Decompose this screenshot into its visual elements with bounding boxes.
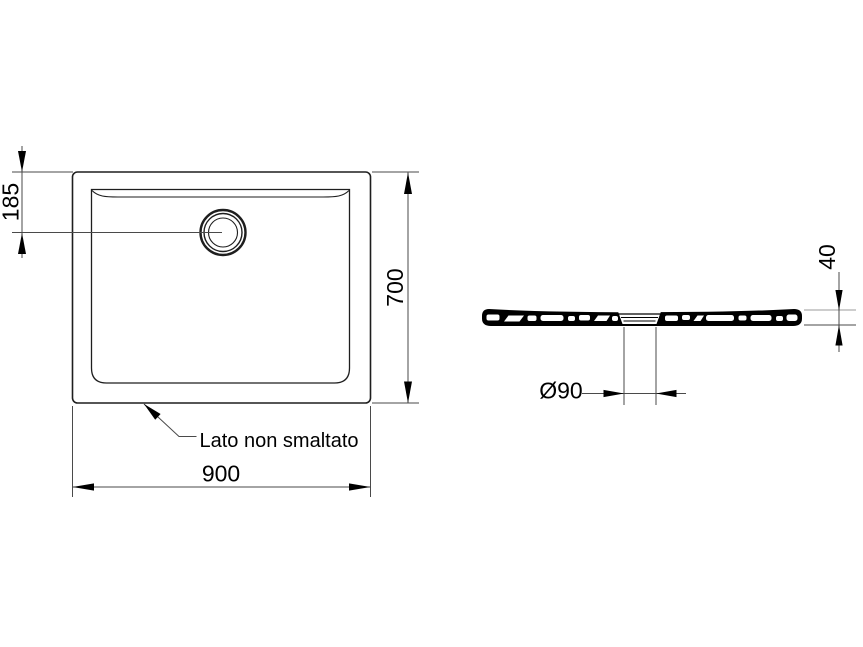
dim-drain-diameter-label: Ø90 bbox=[539, 378, 582, 404]
dim-drain-offset: 185 bbox=[0, 146, 222, 258]
plan-view bbox=[73, 172, 371, 403]
dim-height-label: 40 bbox=[814, 244, 840, 270]
note-unglazed-side: Lato non smaltato bbox=[144, 404, 359, 452]
note-unglazed-side-label: Lato non smaltato bbox=[200, 430, 359, 452]
arrowhead-up bbox=[404, 173, 412, 195]
dim-drain-diameter: Ø90 bbox=[539, 327, 686, 405]
arrowhead-left bbox=[73, 483, 95, 490]
arrowhead-left bbox=[656, 390, 677, 397]
dim-drain-offset-label: 185 bbox=[0, 183, 24, 221]
arrowhead-up bbox=[18, 233, 26, 254]
dim-depth: 700 bbox=[372, 172, 419, 403]
arrowhead-right bbox=[604, 390, 625, 397]
shower-tray-drawing: 185 700 900 Lato non smaltato bbox=[0, 0, 863, 647]
dim-depth-label: 700 bbox=[382, 268, 408, 306]
arrowhead-down bbox=[404, 382, 412, 404]
dim-height: 40 bbox=[804, 244, 856, 352]
side-view bbox=[483, 310, 802, 326]
arrowhead-down bbox=[18, 151, 26, 172]
drain-recess-section bbox=[618, 312, 661, 325]
tray-rim-slope-line bbox=[92, 191, 349, 198]
technical-drawing-canvas: 185 700 900 Lato non smaltato bbox=[0, 0, 863, 647]
arrowhead-down bbox=[835, 290, 842, 311]
arrowhead-up bbox=[835, 325, 842, 346]
dim-width-label: 900 bbox=[202, 461, 240, 487]
tray-outer-edge bbox=[73, 172, 371, 403]
arrowhead-right bbox=[349, 483, 371, 490]
